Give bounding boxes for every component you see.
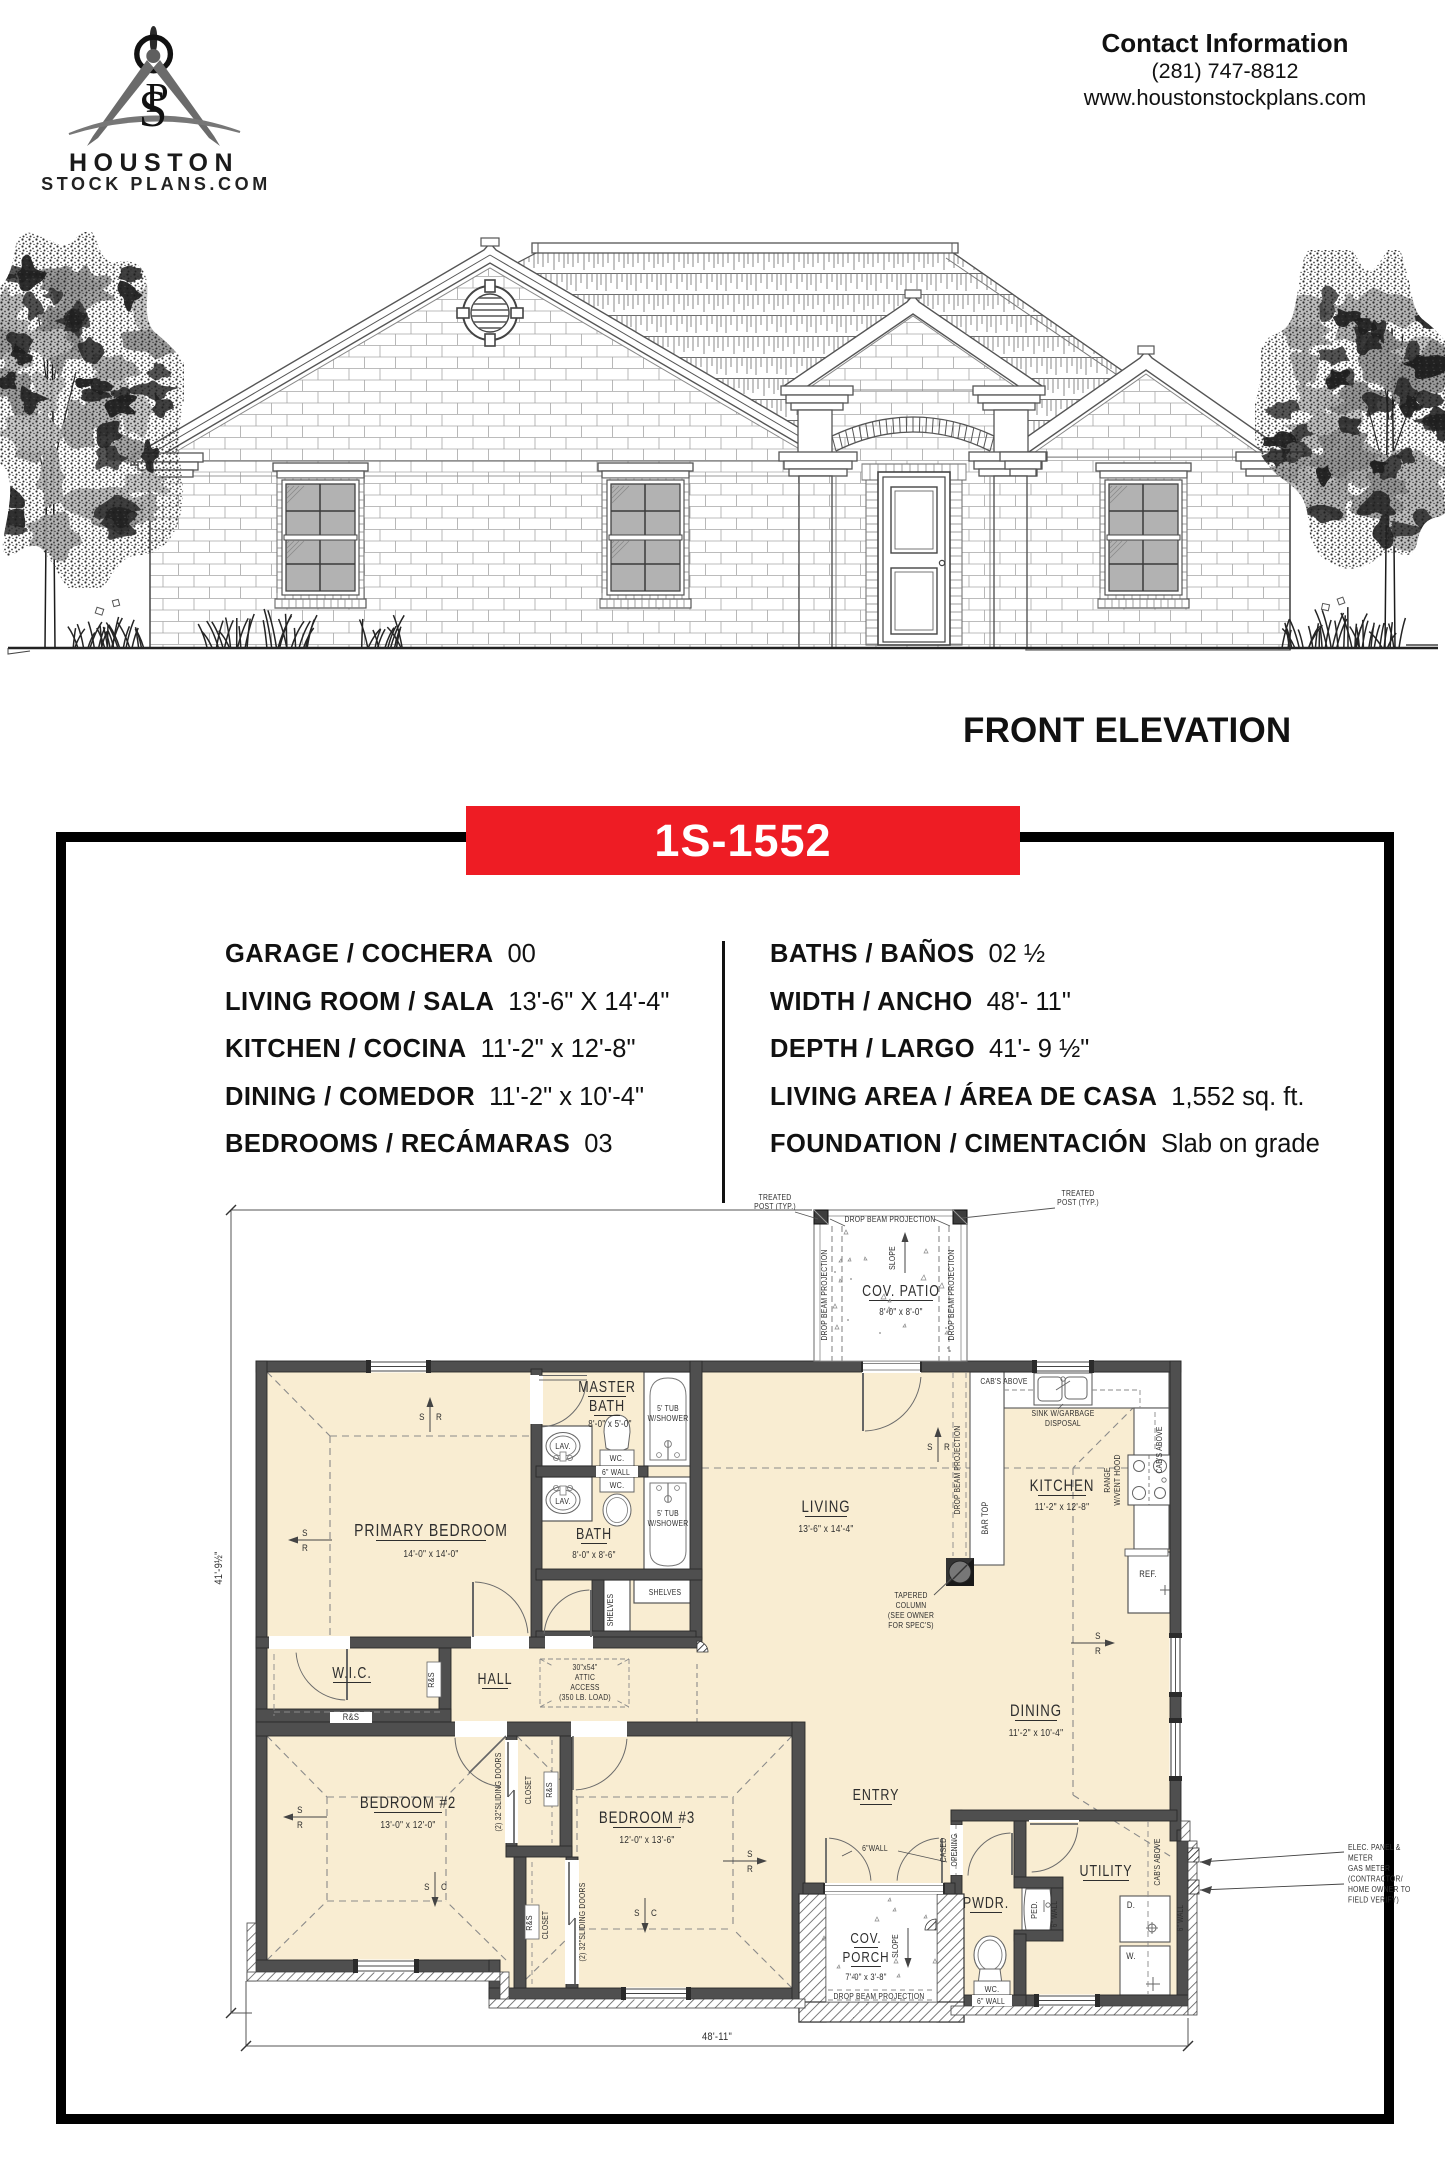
svg-text:S: S: [634, 1907, 640, 1918]
svg-text:6" WALL: 6" WALL: [1175, 1905, 1185, 1931]
svg-text:(2) 32"SLIDING DOORS: (2) 32"SLIDING DOORS: [577, 1883, 587, 1962]
svg-text:CLOSET: CLOSET: [523, 1776, 533, 1805]
svg-text:DROP BEAM PROJECTION: DROP BEAM PROJECTION: [844, 1214, 935, 1224]
svg-text:W/SHOWER: W/SHOWER: [648, 1518, 689, 1528]
svg-text:R&S: R&S: [343, 1711, 360, 1722]
svg-text:R&S: R&S: [426, 1672, 436, 1688]
svg-text:S: S: [419, 1411, 425, 1422]
svg-text:S: S: [1095, 1630, 1101, 1641]
svg-text:13'-0" x 12'-0": 13'-0" x 12'-0": [380, 1819, 435, 1831]
svg-text:TAPERED: TAPERED: [894, 1590, 927, 1600]
svg-text:BEDROOM #2: BEDROOM #2: [360, 1794, 456, 1813]
svg-text:C: C: [441, 1881, 447, 1892]
svg-text:S: S: [747, 1848, 753, 1859]
svg-text:ACCESS: ACCESS: [570, 1682, 599, 1692]
svg-text:48'-11": 48'-11": [702, 2031, 732, 2043]
svg-text:BAR TOP: BAR TOP: [980, 1502, 990, 1535]
svg-text:8'-0" x 8'-6": 8'-0" x 8'-6": [572, 1549, 615, 1560]
svg-text:41'-9½": 41'-9½": [213, 1551, 225, 1584]
svg-text:WC.: WC.: [985, 1984, 1000, 1994]
svg-text:PWDR.: PWDR.: [963, 1895, 1009, 1913]
svg-text:W.: W.: [1126, 1950, 1135, 1961]
svg-text:D.: D.: [1127, 1899, 1135, 1910]
svg-text:R: R: [436, 1411, 442, 1422]
svg-text:S: S: [302, 1527, 308, 1538]
svg-text:SLOPE: SLOPE: [890, 1934, 900, 1958]
svg-text:HOME OWNER TO: HOME OWNER TO: [1348, 1884, 1410, 1894]
svg-text:BATH: BATH: [589, 1398, 625, 1416]
svg-text:COV.: COV.: [850, 1930, 881, 1947]
svg-text:OPENING: OPENING: [949, 1833, 959, 1866]
svg-text:KITCHEN: KITCHEN: [1030, 1477, 1095, 1496]
svg-text:SINK W/GARBAGE: SINK W/GARBAGE: [1032, 1408, 1095, 1418]
svg-text:14'-0" x 14'-0": 14'-0" x 14'-0": [403, 1548, 458, 1560]
svg-text:11'-2" x 10'-4": 11'-2" x 10'-4": [1009, 1727, 1064, 1739]
svg-text:12'-0" x 13'-6": 12'-0" x 13'-6": [619, 1834, 674, 1846]
svg-text:LIVING: LIVING: [801, 1498, 850, 1517]
svg-text:REF.: REF.: [1139, 1568, 1157, 1579]
svg-text:DROP BEAM PROJECTION: DROP BEAM PROJECTION: [946, 1249, 956, 1340]
svg-text:11'-2" x 12'-8": 11'-2" x 12'-8": [1035, 1501, 1090, 1513]
svg-text:R: R: [302, 1542, 308, 1553]
svg-text:5' TUB: 5' TUB: [657, 1508, 679, 1518]
svg-text:6" WALL: 6" WALL: [602, 1467, 630, 1477]
svg-text:BATH: BATH: [576, 1526, 612, 1544]
svg-text:HALL: HALL: [478, 1671, 513, 1689]
svg-text:S: S: [927, 1441, 933, 1452]
svg-text:S: S: [297, 1804, 303, 1815]
svg-text:ELEC. PANEL &: ELEC. PANEL &: [1348, 1842, 1401, 1852]
svg-text:(2) 32"SLIDING DOORS: (2) 32"SLIDING DOORS: [493, 1753, 503, 1832]
svg-text:R: R: [297, 1819, 303, 1830]
svg-text:7'-0" x 3'-8": 7'-0" x 3'-8": [845, 1971, 886, 1982]
svg-text:BEDROOM #3: BEDROOM #3: [599, 1809, 695, 1828]
svg-text:CAB'S ABOVE: CAB'S ABOVE: [1152, 1838, 1162, 1885]
svg-text:LAV.: LAV.: [555, 1441, 570, 1451]
svg-text:DROP BEAM PROJECTION: DROP BEAM PROJECTION: [952, 1426, 962, 1515]
svg-text:LAV.: LAV.: [555, 1496, 570, 1506]
svg-text:ATTIC: ATTIC: [575, 1672, 595, 1682]
svg-text:6" WALL: 6" WALL: [977, 1996, 1005, 2006]
svg-text:SHELVES: SHELVES: [649, 1587, 682, 1597]
svg-text:PRIMARY BEDROOM: PRIMARY BEDROOM: [354, 1520, 508, 1540]
svg-text:6"WALL: 6"WALL: [862, 1843, 888, 1853]
svg-text:CLOSET: CLOSET: [540, 1911, 550, 1940]
svg-text:C: C: [651, 1907, 657, 1918]
svg-text:WC.: WC.: [610, 1480, 625, 1490]
svg-text:SHELVES: SHELVES: [605, 1594, 615, 1627]
svg-text:RANGE: RANGE: [1102, 1467, 1112, 1492]
svg-text:R&S: R&S: [544, 1782, 554, 1798]
svg-text:6" WALL: 6" WALL: [1049, 1901, 1059, 1927]
svg-text:FOR SPEC'S): FOR SPEC'S): [888, 1620, 934, 1630]
svg-text:W.I.C.: W.I.C.: [332, 1665, 372, 1683]
svg-text:DROP BEAM PROJECTION: DROP BEAM PROJECTION: [819, 1249, 829, 1340]
svg-text:CAB'S ABOVE: CAB'S ABOVE: [1154, 1426, 1164, 1473]
svg-text:COV. PATIO: COV. PATIO: [862, 1283, 940, 1301]
svg-text:R: R: [1095, 1645, 1101, 1656]
svg-text:(350 LB. LOAD): (350 LB. LOAD): [559, 1692, 611, 1702]
svg-text:W/VENT HOOD: W/VENT HOOD: [1112, 1454, 1122, 1505]
svg-text:PORCH: PORCH: [843, 1949, 890, 1966]
svg-text:CASED: CASED: [938, 1838, 948, 1863]
svg-text:GAS METER: GAS METER: [1348, 1863, 1390, 1873]
svg-text:R&S: R&S: [524, 1915, 534, 1931]
svg-text:UTILITY: UTILITY: [1080, 1863, 1133, 1881]
svg-text:WC.: WC.: [610, 1453, 625, 1463]
svg-text:SLOPE: SLOPE: [887, 1246, 897, 1270]
svg-text:R: R: [944, 1441, 950, 1452]
svg-text:30"x54": 30"x54": [572, 1662, 597, 1672]
svg-text:R: R: [747, 1863, 753, 1874]
svg-text:S: S: [424, 1881, 430, 1892]
svg-text:POST (TYP.): POST (TYP.): [1057, 1197, 1099, 1207]
svg-text:8'-0" x 8'-0": 8'-0" x 8'-0": [879, 1306, 922, 1317]
svg-text:(SEE OWNER: (SEE OWNER: [888, 1610, 934, 1620]
svg-text:DISPOSAL: DISPOSAL: [1045, 1418, 1081, 1428]
svg-text:MASTER: MASTER: [578, 1379, 636, 1397]
svg-text:PED.: PED.: [1029, 1901, 1039, 1919]
svg-text:W/SHOWER: W/SHOWER: [648, 1413, 689, 1423]
svg-text:(CONTRACTOR/: (CONTRACTOR/: [1348, 1874, 1403, 1884]
svg-text:DINING: DINING: [1010, 1702, 1062, 1721]
svg-text:CAB'S ABOVE: CAB'S ABOVE: [980, 1376, 1027, 1386]
svg-text:8'-0" x 5'-0": 8'-0" x 5'-0": [588, 1418, 631, 1429]
svg-text:ENTRY: ENTRY: [853, 1787, 900, 1805]
svg-text:13'-6" x 14'-4": 13'-6" x 14'-4": [798, 1523, 853, 1535]
svg-text:5' TUB: 5' TUB: [657, 1403, 679, 1413]
svg-text:COLUMN: COLUMN: [896, 1600, 927, 1610]
svg-text:METER: METER: [1348, 1853, 1373, 1863]
svg-text:DROP BEAM PROJECTION: DROP BEAM PROJECTION: [833, 1991, 924, 2001]
svg-text:FIELD VERIFY): FIELD VERIFY): [1348, 1895, 1399, 1905]
